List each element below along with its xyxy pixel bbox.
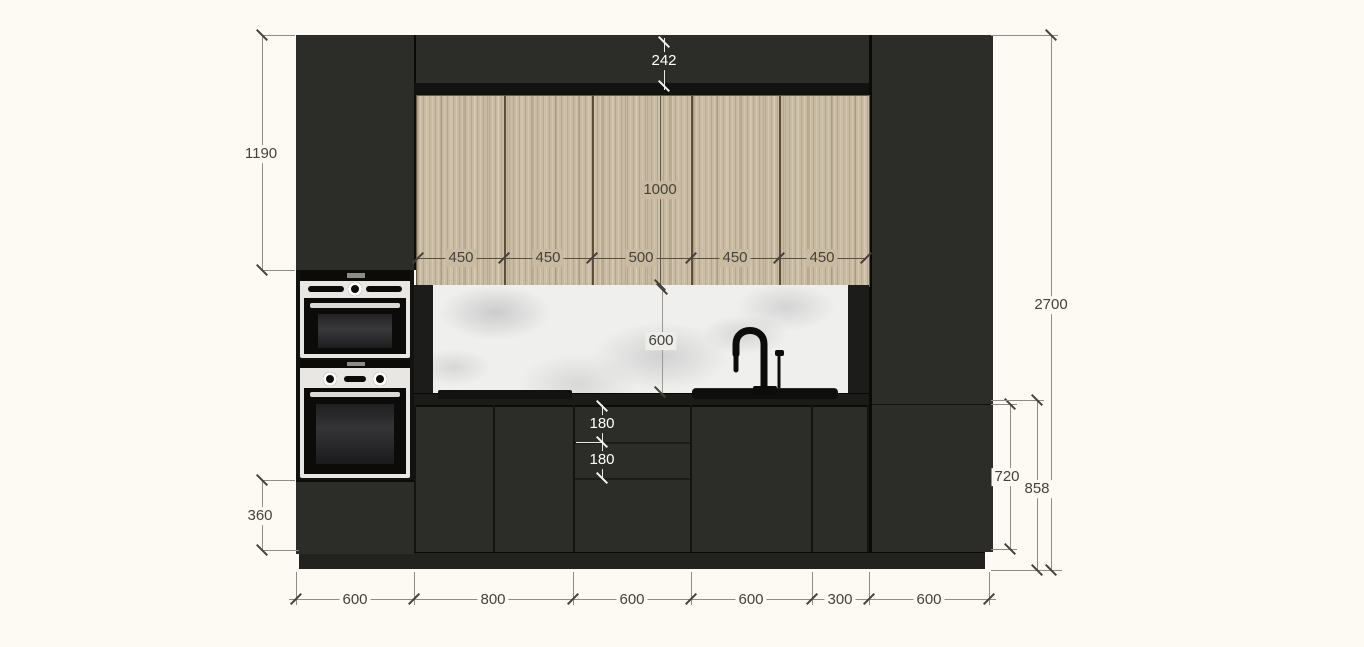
base-door-gap [867, 405, 869, 552]
dim-label-wall-width: 450 [719, 249, 750, 267]
dim-label-total-height: 2700 [1031, 296, 1070, 314]
extension-line [991, 35, 1058, 36]
base-door-gap [690, 405, 692, 552]
dim-label-top-drawer: 180 [586, 415, 617, 433]
dim-label-base-width: 600 [735, 591, 766, 609]
left-bottom-drawer-front [296, 480, 414, 554]
plinth [299, 552, 985, 569]
main-oven-handle [310, 392, 400, 397]
dim-label-wall-width: 450 [806, 249, 837, 267]
dim-label-base-width: 300 [824, 591, 855, 609]
compact-oven [300, 270, 410, 358]
compact-oven-knob [348, 282, 362, 296]
kitchen-elevation-drawing: 1190 360 242 1000 450 450 500 450 450 60… [0, 0, 1364, 647]
left-tall-cabinet-door [296, 35, 419, 270]
main-oven-door [304, 388, 406, 474]
backsplash-side-fill-left [414, 285, 433, 395]
dim-label-base-width: 800 [477, 591, 508, 609]
main-oven-center-bar [344, 376, 366, 382]
extension-line [262, 550, 299, 551]
compact-oven-bar-right [366, 286, 402, 292]
main-oven-knob-right [373, 372, 387, 386]
dim-label-soffit-height: 242 [648, 52, 679, 70]
right-tall-cabinet-door-gap [872, 404, 990, 405]
main-oven [300, 360, 410, 478]
dim-label-wall-width: 450 [532, 249, 563, 267]
base-door-gap [811, 405, 813, 552]
dim-label-wall-width: 500 [625, 249, 656, 267]
base-door-gap [414, 405, 416, 552]
dim-label-bottom-left-drawer: 360 [244, 507, 275, 525]
dim-label-backsplash-height: 600 [645, 332, 676, 350]
extension-line [262, 480, 295, 481]
hob-area [438, 390, 572, 399]
compact-oven-bar-left [308, 286, 344, 292]
dim-label-wall-cabinet-height: 1000 [640, 181, 679, 199]
compact-oven-handle [310, 303, 400, 308]
compact-oven-door [304, 298, 406, 354]
compact-oven-window [318, 314, 392, 348]
backsplash-side-fill-right [848, 285, 869, 395]
right-tall-cabinet [869, 35, 993, 552]
drawer-divider [575, 478, 690, 480]
dim-label-base-width: 600 [339, 591, 370, 609]
dim-label-second-drawer: 180 [586, 451, 617, 469]
dim-label-worktop-to-floor: 858 [1021, 480, 1052, 498]
compact-oven-display [347, 273, 365, 278]
soffit-panel [414, 35, 873, 83]
extension-line [262, 270, 295, 271]
extension-line [262, 35, 295, 36]
soffit-shadow-strip [414, 83, 869, 95]
dim-label-base-unit-height: 720 [991, 468, 1022, 486]
dim-label-base-width: 600 [913, 591, 944, 609]
main-oven-display [347, 362, 365, 366]
main-oven-window [316, 404, 394, 464]
extension-line [576, 442, 603, 443]
main-oven-knob-left [323, 372, 337, 386]
faucet [715, 310, 795, 402]
dim-label-wall-width: 450 [445, 249, 476, 267]
dim-label-tall-upper-door: 1190 [242, 145, 280, 163]
base-door-gap [493, 405, 495, 552]
dim-label-base-width: 600 [616, 591, 647, 609]
